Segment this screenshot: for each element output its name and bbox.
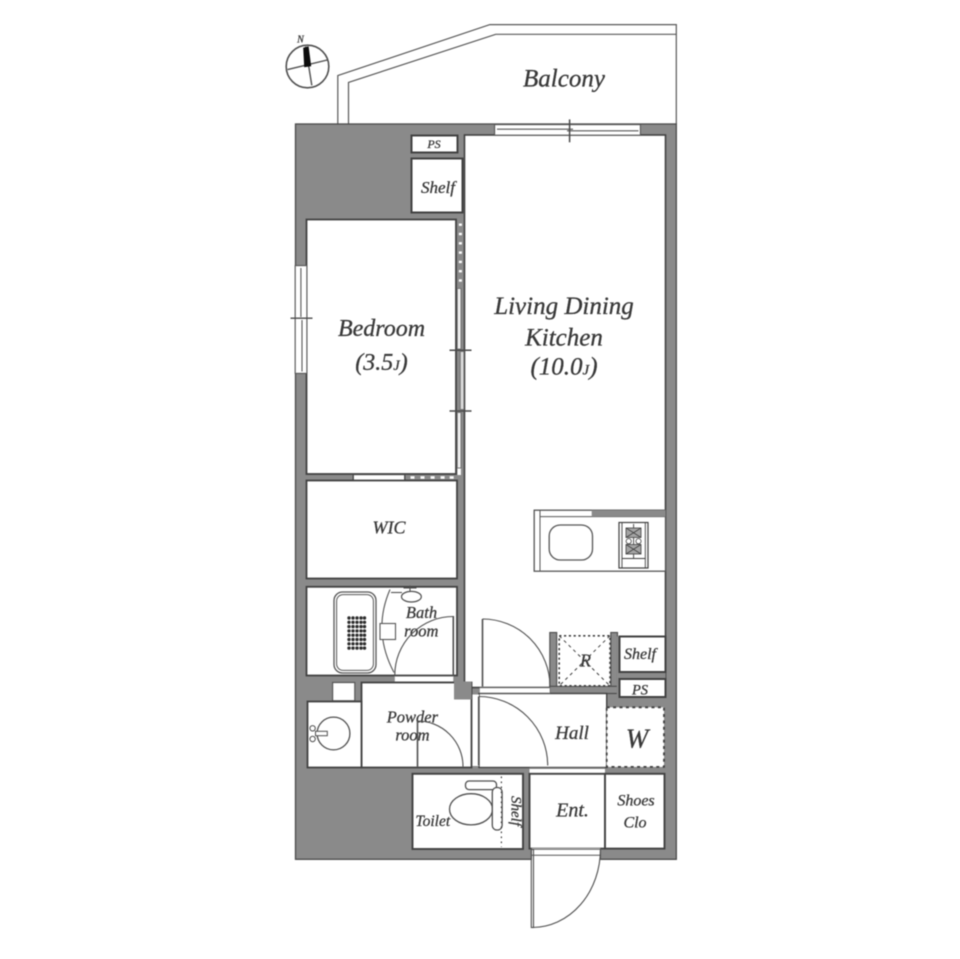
svg-text:PS: PS xyxy=(426,137,440,151)
svg-text:N: N xyxy=(296,35,305,46)
svg-text:Toilet: Toilet xyxy=(415,813,450,830)
svg-text:Ent.: Ent. xyxy=(555,800,589,822)
svg-text:Balcony: Balcony xyxy=(523,66,606,93)
svg-text:Powder: Powder xyxy=(386,708,439,727)
svg-text:Bedroom: Bedroom xyxy=(338,316,425,342)
svg-text:room: room xyxy=(395,726,429,745)
svg-text:Shelf: Shelf xyxy=(421,178,457,197)
svg-text:Living Dining: Living Dining xyxy=(493,293,634,320)
svg-text:Kitchen: Kitchen xyxy=(524,325,603,352)
svg-text:Hall: Hall xyxy=(554,723,589,744)
svg-text:WIC: WIC xyxy=(373,518,407,538)
svg-text:Clo: Clo xyxy=(623,815,646,832)
svg-text:R: R xyxy=(579,651,591,671)
svg-text:Shelf: Shelf xyxy=(508,796,524,828)
svg-text:W: W xyxy=(626,724,651,754)
svg-text:PS: PS xyxy=(631,683,649,699)
svg-text:(3.5J): (3.5J) xyxy=(355,350,407,376)
svg-text:Bath: Bath xyxy=(406,603,437,622)
svg-text:Shelf: Shelf xyxy=(624,646,659,663)
svg-text:room: room xyxy=(404,622,438,641)
svg-text:Shoes: Shoes xyxy=(617,793,654,810)
